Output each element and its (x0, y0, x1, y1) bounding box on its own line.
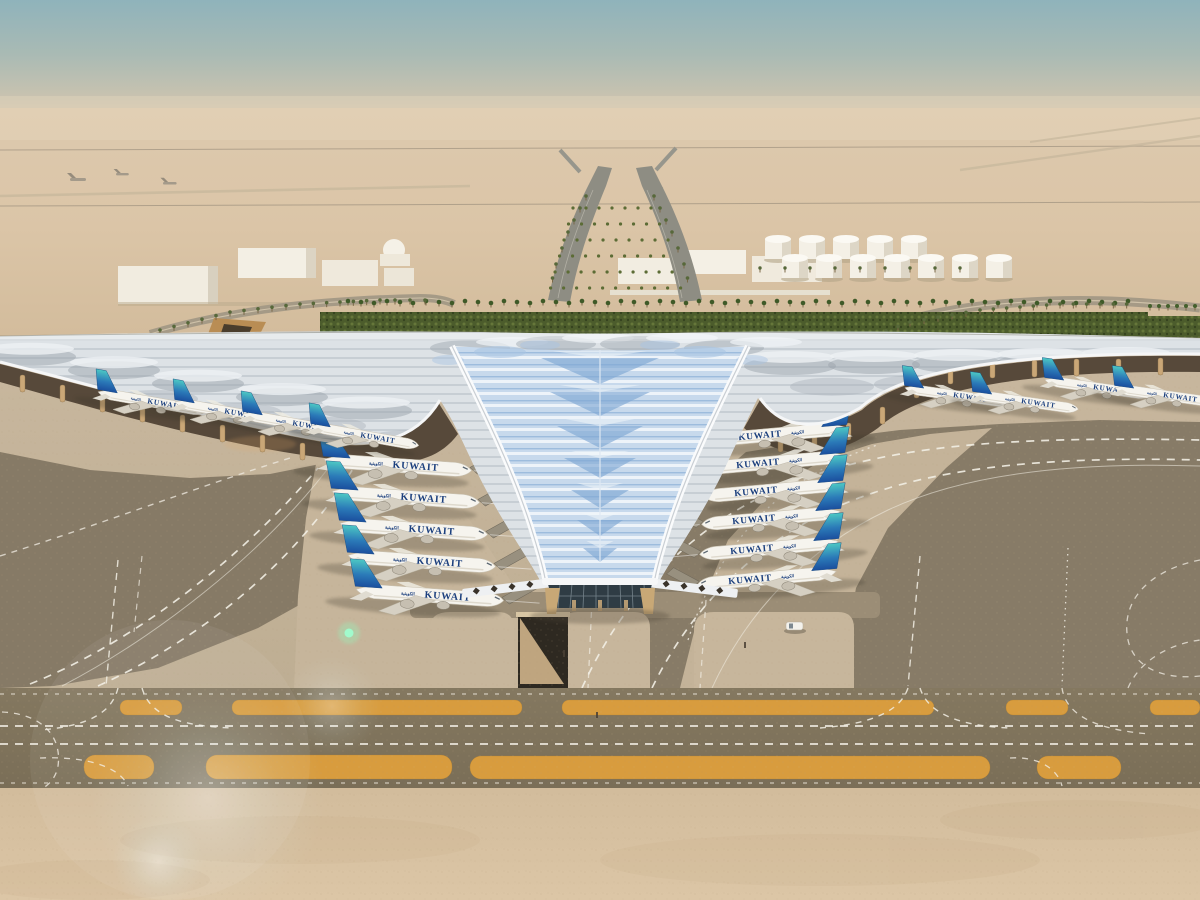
median-planting (562, 286, 565, 289)
median-planting (592, 270, 595, 273)
palm-crown (879, 301, 884, 306)
scene-svg: Aerial architectural rendering of a new … (0, 0, 1200, 900)
median-planting (666, 286, 669, 289)
warehouse-shade (208, 266, 218, 304)
palm-crown (788, 300, 793, 305)
palm-crown (783, 266, 786, 269)
palm-crown (827, 300, 832, 305)
median-planting (610, 206, 613, 209)
palm-crown (423, 298, 427, 302)
building (688, 250, 746, 274)
apex-shadow (530, 608, 670, 624)
palm-crown (541, 299, 546, 304)
palm-crown (922, 318, 926, 322)
median-planting (571, 206, 574, 209)
palm-crown (978, 308, 982, 312)
median-planting (588, 238, 591, 241)
palm-crown (652, 194, 656, 198)
warehouse (238, 248, 316, 278)
palm-crown (554, 300, 559, 305)
canopy-column (300, 443, 305, 460)
palm-crown (378, 298, 382, 302)
palm-crown (515, 300, 520, 305)
palm-crown (682, 262, 686, 266)
canopy-column (220, 425, 225, 442)
palm-crown (957, 301, 962, 306)
palm-crown (676, 246, 680, 250)
palm-crown (840, 301, 845, 306)
canopy-column (260, 435, 265, 452)
green-flare-dot (345, 629, 354, 638)
palm-crown (1018, 305, 1022, 309)
palm-crown (936, 315, 940, 319)
palm-crown (670, 230, 674, 234)
palm-crown (686, 276, 690, 280)
warehouse (118, 266, 218, 304)
median-planting (653, 238, 656, 241)
fuel-tank (985, 254, 1013, 282)
fuel-tank (951, 254, 979, 282)
palm-crown (808, 266, 811, 269)
median-planting (653, 286, 656, 289)
roof-billow (70, 356, 158, 368)
palm-crown (908, 320, 912, 324)
palm-crown (346, 299, 351, 304)
warehouse (322, 260, 378, 286)
palm-crown (1193, 304, 1197, 308)
palm-crown (325, 301, 329, 305)
roof-billow (154, 370, 242, 382)
roof-billow (914, 349, 1002, 361)
palm-crown (944, 300, 949, 305)
palm-crown (567, 301, 572, 306)
median-planting (666, 238, 669, 241)
palm-crown (528, 301, 533, 306)
median-planting (640, 286, 643, 289)
median-planting (662, 254, 665, 257)
palm-crown (200, 317, 204, 321)
median-planting (593, 222, 596, 225)
palm-crown (1175, 304, 1179, 308)
palm-crown (918, 301, 923, 306)
palm-crown (572, 218, 576, 222)
palm-crown (723, 301, 728, 306)
palm-crown (992, 307, 996, 311)
palm-crown (1112, 302, 1116, 306)
median-planting (618, 270, 621, 273)
median-planting (670, 270, 673, 273)
canopy-column (1158, 358, 1163, 375)
median-planting (627, 238, 630, 241)
palm-crown (372, 301, 377, 306)
palm-crown (853, 299, 858, 304)
roof-billow (790, 378, 874, 396)
palm-crown (801, 301, 806, 306)
fuel-tank (815, 254, 843, 282)
median-planting (549, 286, 552, 289)
median-planting (567, 222, 570, 225)
palm-crown (908, 266, 911, 269)
median-planting (649, 254, 652, 257)
palm-crown (359, 300, 364, 305)
palm-crown (1157, 304, 1161, 308)
median-planting (597, 254, 600, 257)
median-planting (601, 238, 604, 241)
palm-crown (284, 304, 288, 308)
palm-crown (242, 309, 246, 313)
palm-crown (270, 305, 274, 309)
palm-crown (736, 299, 741, 304)
median-planting (606, 222, 609, 225)
palm-crown (566, 230, 570, 234)
palm-crown (186, 321, 190, 325)
palm-crown (710, 300, 715, 305)
palm-crown (758, 266, 761, 269)
palm-crown (970, 299, 975, 304)
median-planting (588, 286, 591, 289)
palm-crown (950, 313, 954, 317)
palm-crown (1005, 306, 1009, 310)
palm-crown (489, 301, 494, 306)
dome-base (380, 254, 410, 266)
median-planting (631, 270, 634, 273)
palm-crown (560, 246, 564, 250)
palm-crown (1035, 301, 1040, 306)
palm-crown (833, 266, 836, 269)
palm-crown (983, 300, 988, 305)
median-planting (553, 270, 556, 273)
median-planting (605, 270, 608, 273)
palm-crown (964, 311, 968, 315)
apex-fascia (542, 578, 658, 585)
median-planting (644, 270, 647, 273)
palm-crown (1072, 302, 1076, 306)
canopy-column (60, 385, 65, 402)
palm-crown (664, 218, 668, 222)
heat-haze (0, 96, 1200, 140)
palm-crown (671, 300, 676, 305)
median-planting (575, 286, 578, 289)
median-planting (579, 270, 582, 273)
palm-crown (1045, 303, 1049, 307)
palm-crown (398, 300, 403, 305)
palm-crown (256, 307, 260, 311)
palm-crown (658, 299, 663, 304)
palm-crown (749, 300, 754, 305)
palm-crown (338, 300, 342, 304)
median-planting (614, 238, 617, 241)
palm-crown (892, 299, 897, 304)
palm-crown (775, 299, 780, 304)
median-planting (571, 254, 574, 257)
palm-crown (593, 300, 598, 305)
canopy-column (880, 407, 885, 424)
palm-crown (312, 302, 316, 306)
canopy-column (20, 375, 25, 392)
landscape-strip-right (1148, 316, 1200, 338)
roof-billow (830, 350, 918, 362)
median-planting (679, 286, 682, 289)
fuel-tank (883, 254, 911, 282)
median-planting (636, 206, 639, 209)
median-planting (584, 254, 587, 257)
palm-crown (476, 300, 481, 305)
palm-crown (228, 310, 232, 314)
palm-crown (551, 276, 555, 280)
palm-crown (580, 299, 585, 304)
palm-crown (762, 301, 767, 306)
median-planting (640, 238, 643, 241)
median-planting (632, 222, 635, 225)
palm-crown (632, 300, 637, 305)
palm-crown (158, 328, 162, 332)
median-planting (597, 206, 600, 209)
palm-crown (1148, 304, 1152, 308)
palm-crown (1085, 302, 1089, 306)
palm-crown (933, 266, 936, 269)
median-planting (658, 222, 661, 225)
palm-crown (883, 266, 886, 269)
roof-billow (322, 397, 410, 409)
palm-crown (1009, 299, 1014, 304)
palm-crown (697, 299, 702, 304)
palm-crown (411, 301, 416, 306)
palm-crown (619, 299, 624, 304)
median-planting (649, 206, 652, 209)
palm-crown (958, 266, 961, 269)
median-planting (645, 222, 648, 225)
palm-crown (1166, 304, 1170, 308)
palm-crown (814, 299, 819, 304)
palm-crown (502, 299, 507, 304)
canopy-column (1074, 359, 1079, 376)
median-planting (601, 286, 604, 289)
warehouse-shade (306, 248, 316, 278)
palm-crown (1058, 302, 1062, 306)
palm-crown (684, 301, 689, 306)
service-vehicle (784, 622, 806, 634)
palm-crown (1098, 302, 1102, 306)
palm-crown (584, 194, 588, 198)
palm-crown (450, 301, 455, 306)
median-planting (636, 254, 639, 257)
palm-crown (606, 301, 611, 306)
median-planting (562, 238, 565, 241)
median-planting (623, 254, 626, 257)
median-planting (580, 222, 583, 225)
palm-crown (1125, 302, 1129, 306)
median-planting (584, 206, 587, 209)
palm-crown (172, 325, 176, 329)
palm-crown (996, 301, 1001, 306)
boundary-wall (610, 290, 830, 295)
palm-crown (408, 298, 412, 302)
palm-crown (1022, 300, 1027, 305)
palm-crown (1184, 304, 1188, 308)
palm-crown (858, 266, 861, 269)
median-planting (614, 286, 617, 289)
median-planting (575, 238, 578, 241)
small-building (384, 268, 414, 286)
palm-crown (931, 299, 936, 304)
palm-crown (352, 300, 356, 304)
palm-crown (214, 314, 218, 318)
palm-crown (578, 206, 582, 210)
palm-crown (298, 302, 302, 306)
palm-crown (437, 300, 442, 305)
palm-crown (393, 298, 397, 302)
palm-crown (866, 300, 871, 305)
median-planting (619, 222, 622, 225)
median-planting (610, 254, 613, 257)
median-planting (558, 254, 561, 257)
palm-crown (658, 206, 662, 210)
palm-crown (896, 325, 900, 329)
palm-crown (645, 301, 650, 306)
palm-crown (1032, 304, 1036, 308)
palm-crown (385, 299, 390, 304)
palm-crown (905, 300, 910, 305)
canopy-column (1032, 360, 1037, 377)
palm-crown (463, 299, 468, 304)
fuel-tank (917, 254, 945, 282)
median-planting (623, 206, 626, 209)
median-planting (566, 270, 569, 273)
palm-crown (1048, 299, 1053, 304)
median-planting (657, 270, 660, 273)
fuel-tank (849, 254, 877, 282)
airport-rendering: Aerial architectural rendering of a new … (0, 0, 1200, 900)
median-planting (627, 286, 630, 289)
palm-crown (554, 262, 558, 266)
palm-crown (365, 299, 369, 303)
